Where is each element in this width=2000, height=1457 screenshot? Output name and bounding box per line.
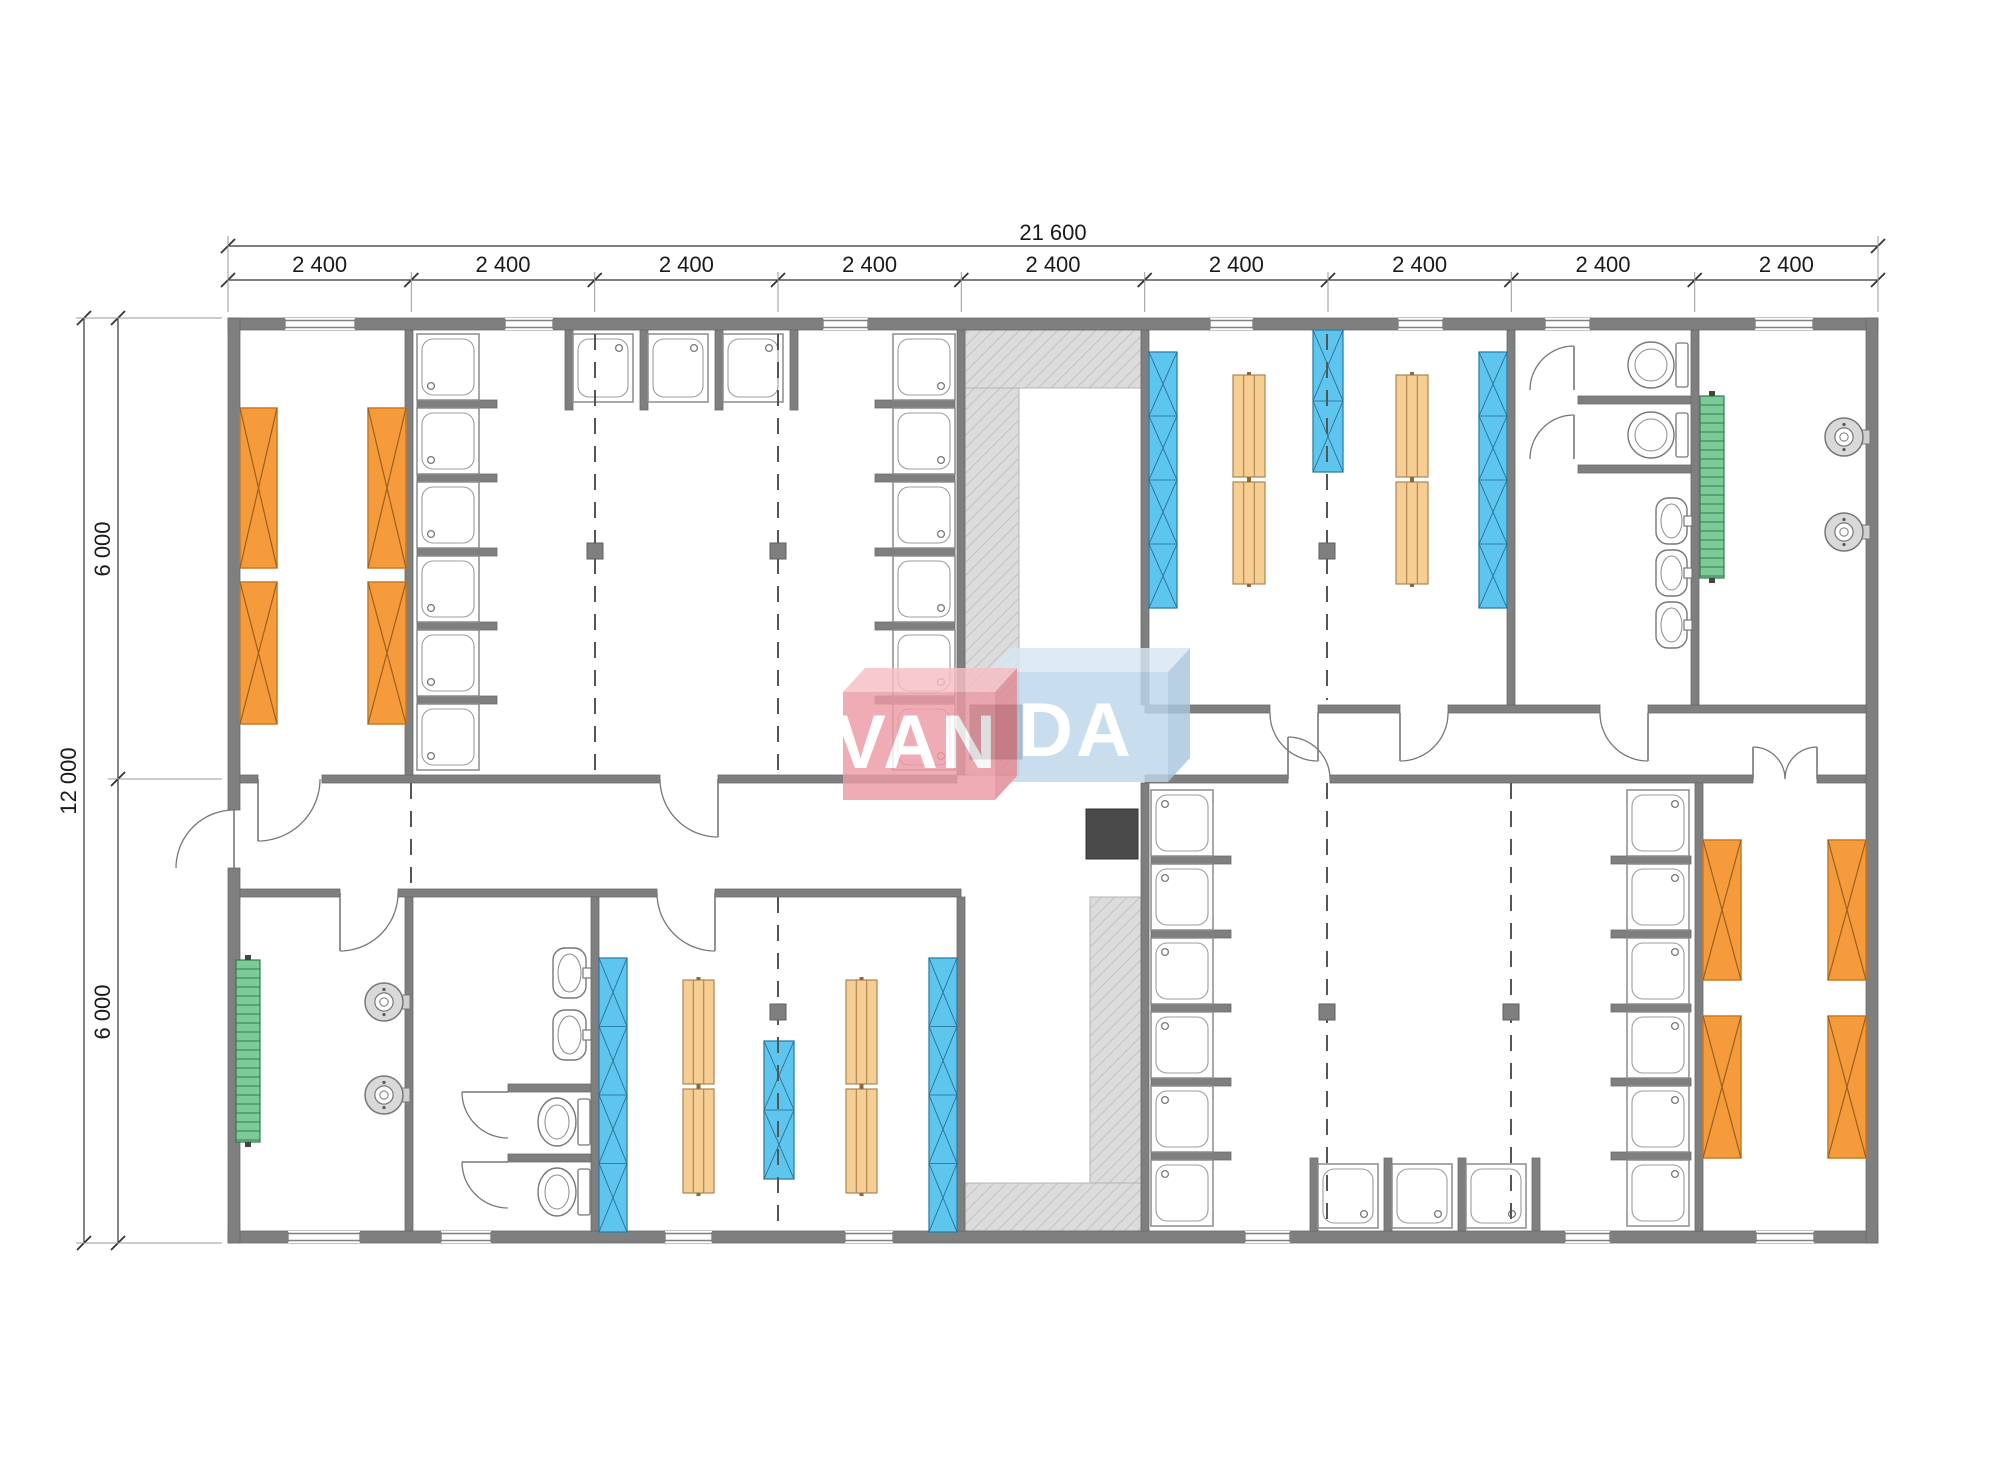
shower-tray xyxy=(648,334,708,402)
wall xyxy=(565,330,573,410)
column-marker xyxy=(770,1004,786,1020)
shower-tray xyxy=(723,334,783,402)
wall xyxy=(1448,705,1600,713)
shower-tray xyxy=(1627,1012,1689,1078)
wooden-bench xyxy=(1396,479,1428,587)
hatch-area xyxy=(965,1183,1141,1231)
wooden-bench xyxy=(1396,372,1428,480)
logo-text-da: DA xyxy=(1018,688,1134,773)
bunk-bed xyxy=(368,582,406,724)
wall xyxy=(875,622,955,630)
bunk-bed xyxy=(1703,1016,1741,1158)
logo-red-slab xyxy=(843,668,1017,692)
dim-half-height-top: 6 000 xyxy=(90,521,115,576)
wall xyxy=(1310,1158,1318,1231)
column-marker xyxy=(1319,543,1335,559)
wall xyxy=(1817,775,1866,783)
floor-plan-drawing: 21 600 12 000 6 000 6 000 2 4002 4002 40… xyxy=(0,0,2000,1457)
wall xyxy=(417,622,497,630)
wall xyxy=(1695,783,1703,1231)
wall xyxy=(1507,330,1515,705)
wall xyxy=(240,889,340,897)
wall xyxy=(1611,1078,1691,1086)
wall xyxy=(1141,783,1149,1231)
wall xyxy=(1458,1158,1466,1231)
shower-tray xyxy=(893,334,955,400)
wall xyxy=(875,548,955,556)
shower-tray xyxy=(1627,864,1689,930)
wooden-bench xyxy=(1233,372,1265,480)
wall xyxy=(1151,1078,1231,1086)
wall xyxy=(875,400,955,408)
shower-tray xyxy=(893,482,955,548)
column-marker xyxy=(587,543,603,559)
wall xyxy=(1532,1158,1540,1231)
shower-tray xyxy=(1151,864,1213,930)
shower-tray xyxy=(1627,790,1689,856)
shower-tray xyxy=(1627,938,1689,1004)
locker-cabinet xyxy=(1479,352,1507,608)
wooden-bench xyxy=(683,977,714,1087)
hatch-area xyxy=(1090,897,1141,1183)
dim-module-width: 2 400 xyxy=(292,252,347,277)
shower-tray xyxy=(417,334,479,400)
shower-tray xyxy=(1466,1164,1526,1228)
shower-tray xyxy=(1151,1012,1213,1078)
sink xyxy=(1656,498,1692,544)
drying-rack xyxy=(1700,391,1724,583)
shower-tray xyxy=(1392,1164,1452,1228)
wall xyxy=(1611,930,1691,938)
logo-text-van: VAN xyxy=(835,700,999,785)
wall xyxy=(322,775,660,783)
dim-module-width: 2 400 xyxy=(1759,252,1814,277)
wooden-bench xyxy=(846,977,877,1087)
sink xyxy=(553,948,591,998)
wall xyxy=(957,897,965,1231)
shower-tray xyxy=(573,334,633,402)
wall xyxy=(1611,1004,1691,1012)
wall xyxy=(1318,705,1400,713)
shower-tray xyxy=(1627,1086,1689,1152)
shower-tray xyxy=(417,704,479,770)
wall xyxy=(228,318,1878,330)
wall xyxy=(508,1084,591,1092)
bunk-bed xyxy=(368,408,406,568)
wall xyxy=(1866,318,1878,1243)
dim-total-width: 21 600 xyxy=(1019,220,1086,245)
dim-module-width: 2 400 xyxy=(1209,252,1264,277)
wall xyxy=(1151,1004,1231,1012)
locker-cabinet xyxy=(929,958,957,1232)
shower-tray xyxy=(1151,1086,1213,1152)
shower-tray xyxy=(417,408,479,474)
wall xyxy=(240,775,258,783)
dim-module-width: 2 400 xyxy=(842,252,897,277)
floor-plan-canvas: 21 600 12 000 6 000 6 000 2 4002 4002 40… xyxy=(0,0,2000,1457)
dim-module-width: 2 400 xyxy=(1025,252,1080,277)
dim-module-width: 2 400 xyxy=(1392,252,1447,277)
wall xyxy=(508,1154,591,1162)
logo-blue-slab xyxy=(988,648,1190,672)
wall xyxy=(1330,775,1753,783)
shower-tray xyxy=(417,556,479,622)
shower-tray xyxy=(1151,1160,1213,1226)
wall xyxy=(1578,465,1691,473)
dim-total-height: 12 000 xyxy=(56,747,81,814)
sink xyxy=(1656,550,1692,596)
wall xyxy=(417,400,497,408)
wooden-bench xyxy=(846,1086,877,1196)
wall xyxy=(417,548,497,556)
wooden-bench xyxy=(1233,479,1265,587)
wall xyxy=(1648,705,1866,713)
wall xyxy=(715,330,723,410)
wall xyxy=(1578,396,1691,404)
wall xyxy=(1384,1158,1392,1231)
wall xyxy=(417,474,497,482)
door-arc xyxy=(176,810,234,868)
bunk-bed xyxy=(1828,840,1866,980)
sink xyxy=(1656,602,1692,648)
wall xyxy=(1611,1152,1691,1160)
shower-tray xyxy=(417,630,479,696)
dim-module-width: 2 400 xyxy=(659,252,714,277)
bunk-bed xyxy=(1828,1016,1866,1158)
locker-cabinet xyxy=(1149,352,1177,608)
wall xyxy=(1151,1152,1231,1160)
locker-cabinet xyxy=(599,958,627,1232)
column-marker xyxy=(1319,1004,1335,1020)
toilet xyxy=(538,1168,590,1216)
column-marker xyxy=(1503,1004,1519,1020)
wall xyxy=(640,330,648,410)
dark-equipment xyxy=(1086,809,1138,859)
shower-tray xyxy=(1151,938,1213,1004)
vanda-watermark-logo: VANDA xyxy=(835,648,1190,800)
toilet xyxy=(1628,342,1688,388)
shower-tray xyxy=(1151,790,1213,856)
shower-tray xyxy=(893,556,955,622)
wall xyxy=(1151,856,1231,864)
dim-module-width: 2 400 xyxy=(475,252,530,277)
hatch-area xyxy=(965,330,1141,388)
shower-tray xyxy=(893,408,955,474)
toilet xyxy=(538,1098,590,1146)
sink xyxy=(553,1010,591,1060)
wall xyxy=(591,897,599,1231)
shower-tray xyxy=(417,482,479,548)
drying-rack xyxy=(236,955,260,1147)
dim-module-width: 2 400 xyxy=(1575,252,1630,277)
wall xyxy=(405,897,413,1231)
bunk-bed xyxy=(1703,840,1741,980)
bunk-bed xyxy=(240,582,277,724)
wall xyxy=(875,474,955,482)
wall xyxy=(417,696,497,704)
wooden-bench xyxy=(683,1086,714,1196)
dim-half-height-bottom: 6 000 xyxy=(90,984,115,1039)
bunk-bed xyxy=(240,408,277,568)
wall xyxy=(228,318,240,810)
toilet xyxy=(1628,412,1688,458)
wall xyxy=(398,889,657,897)
column-marker xyxy=(770,543,786,559)
wall xyxy=(790,330,798,410)
wall xyxy=(1611,856,1691,864)
wall xyxy=(1151,930,1231,938)
shower-tray xyxy=(1627,1160,1689,1226)
wall xyxy=(715,889,961,897)
